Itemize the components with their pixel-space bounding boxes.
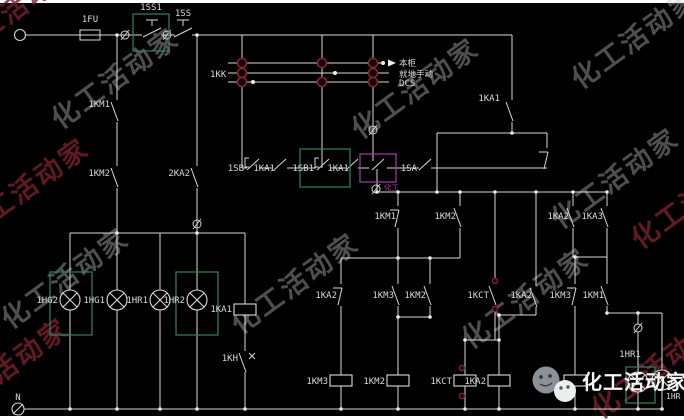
component-label: 1HR1 — [619, 350, 641, 360]
component-label: 1KM2 — [363, 377, 385, 387]
component-label: 1KA3 — [581, 212, 603, 222]
component-label: N — [15, 393, 20, 403]
selector-contact — [318, 78, 327, 87]
component-label: 1KA2 — [547, 212, 569, 222]
junction-dot — [68, 407, 72, 411]
junction-dot — [435, 190, 439, 194]
site-logo-text: 化工活动家 — [582, 370, 684, 394]
component-label: 1KM2 — [88, 169, 110, 179]
junction-dot — [660, 407, 664, 411]
terminal-red-dot — [459, 393, 464, 398]
junction-dot — [396, 407, 400, 411]
component-label: 1KM2 — [404, 291, 426, 301]
wechat-bubble-eye — [566, 385, 569, 388]
component-label: 1SB1 — [292, 164, 314, 174]
junction-dot — [497, 313, 501, 317]
wechat-bubble-eye — [559, 386, 562, 389]
component-label: 1KA2 — [315, 291, 337, 301]
component-label: 1KM3 — [372, 291, 394, 301]
component-label: 1FU — [82, 15, 98, 25]
component-label: 1KK — [210, 70, 227, 80]
junction-dot — [571, 190, 575, 194]
selector-contact — [318, 59, 327, 68]
junction-dot — [195, 407, 199, 411]
junction-dot — [605, 311, 609, 315]
selector-position-dot — [333, 71, 337, 75]
component-label: 1KM2 — [434, 212, 456, 222]
component-label: 1SS1 — [140, 3, 162, 13]
relay-coil — [488, 375, 510, 386]
relay-coil — [330, 375, 352, 386]
component-label: 1SA — [401, 164, 418, 174]
component-label: 本柜 — [399, 58, 417, 69]
component-label: 1HG2 — [36, 296, 58, 306]
wechat-bubble-icon-small — [554, 380, 576, 402]
junction-dot — [605, 190, 609, 194]
junction-dot — [573, 255, 577, 259]
junction-dot — [195, 231, 199, 235]
selector-contact — [369, 69, 378, 78]
selector-contact — [369, 59, 378, 68]
component-label: 1KM1 — [374, 212, 396, 222]
junction-dot — [497, 338, 501, 342]
component-label: 1KA1 — [253, 164, 275, 174]
terminal-red-dot — [459, 365, 464, 370]
selector-contact — [369, 78, 378, 87]
terminal-red-dot — [492, 278, 497, 283]
component-label: 1HR2 — [163, 296, 185, 306]
junction-dot — [396, 256, 400, 260]
junction-dot — [463, 338, 467, 342]
junction-dot — [510, 131, 514, 135]
component-label: 1KA1 — [327, 164, 349, 174]
component-label: DCS — [399, 79, 415, 89]
component-label: 化工 — [384, 182, 399, 192]
junction-dot — [636, 407, 640, 411]
component-label: 1KM1 — [582, 291, 604, 301]
junction-dot — [339, 407, 343, 411]
junction-dot — [458, 190, 462, 194]
component-label: 1KM1 — [88, 100, 110, 110]
junction-dot — [115, 407, 119, 411]
component-label: 1KM3 — [306, 377, 328, 387]
junction-dot — [493, 190, 497, 194]
junction-dot — [463, 407, 467, 411]
component-label: 1KA2 — [464, 377, 486, 387]
component-label: 1HG1 — [83, 296, 105, 306]
junction-dot — [375, 190, 379, 194]
junction-dot — [428, 256, 432, 260]
junction-dot — [573, 407, 577, 411]
relay-coil — [387, 375, 409, 386]
selector-position-dot — [381, 61, 385, 65]
junction-dot — [534, 190, 538, 194]
junction-dot — [497, 407, 501, 411]
junction-dot — [428, 315, 432, 319]
component-label: 1KM3 — [549, 291, 571, 301]
selector-contact — [238, 69, 247, 78]
component-label: 1KA2 — [510, 291, 532, 301]
component-label: 1KCT — [430, 377, 452, 387]
component-label: 1HR1 — [126, 296, 148, 306]
junction-dot — [195, 33, 199, 37]
schematic-screenshot: 化工活动家化工活动家化工活动家化工活动家化工活动家化工活动家化工活动家化工活动家… — [0, 0, 684, 420]
junction-dot — [158, 407, 162, 411]
component-label: 1KA1 — [478, 94, 500, 104]
component-label: 1KCT — [467, 291, 489, 301]
junction-dot — [396, 315, 400, 319]
junction-dot — [115, 33, 119, 37]
relay-coil — [234, 304, 256, 315]
selector-contact — [238, 78, 247, 87]
junction-dot — [243, 407, 247, 411]
component-label: 1SS — [175, 9, 191, 19]
component-label: 1SB — [228, 164, 244, 174]
component-label: 1KH — [222, 354, 238, 364]
selector-contact — [238, 59, 247, 68]
junction-dot — [636, 311, 640, 315]
component-label: 2KA2 — [168, 169, 190, 179]
selector-position-dot — [251, 80, 255, 84]
wechat-bubble-eye — [539, 375, 543, 379]
schematic-canvas: 化工活动家化工活动家化工活动家化工活动家化工活动家化工活动家化工活动家化工活动家… — [0, 0, 684, 420]
terminal-red-dot — [492, 306, 497, 311]
component-label: 1KA1 — [210, 305, 232, 315]
junction-dot — [115, 231, 119, 235]
wechat-bubble-eye — [548, 374, 552, 378]
